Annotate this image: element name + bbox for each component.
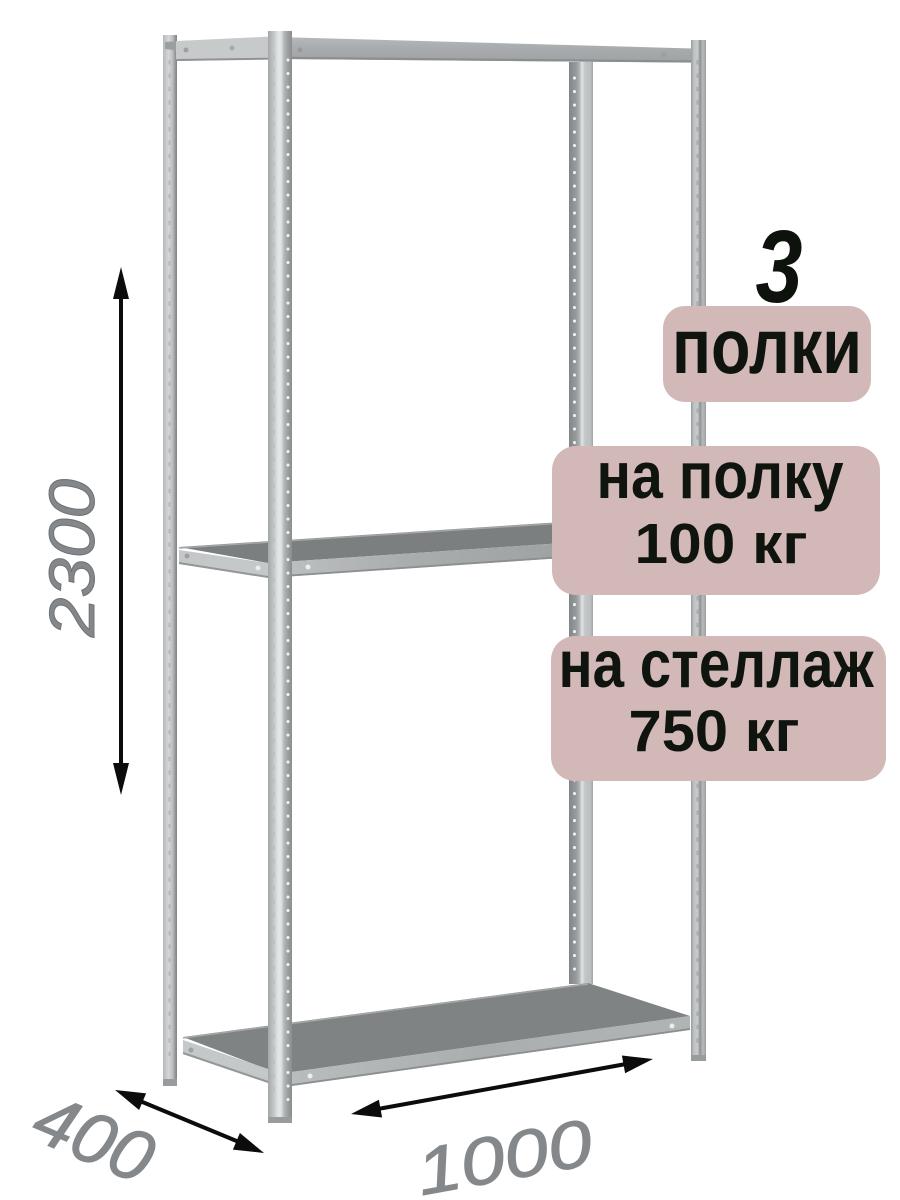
svg-text:750 кг: 750 кг [629,699,800,764]
svg-text:на полку: на полку [597,438,844,512]
svg-text:полки: полки [672,302,862,390]
svg-text:на стеллаж: на стеллаж [559,627,875,702]
svg-text:100 кг: 100 кг [635,512,808,576]
svg-text:2300: 2300 [36,479,108,639]
